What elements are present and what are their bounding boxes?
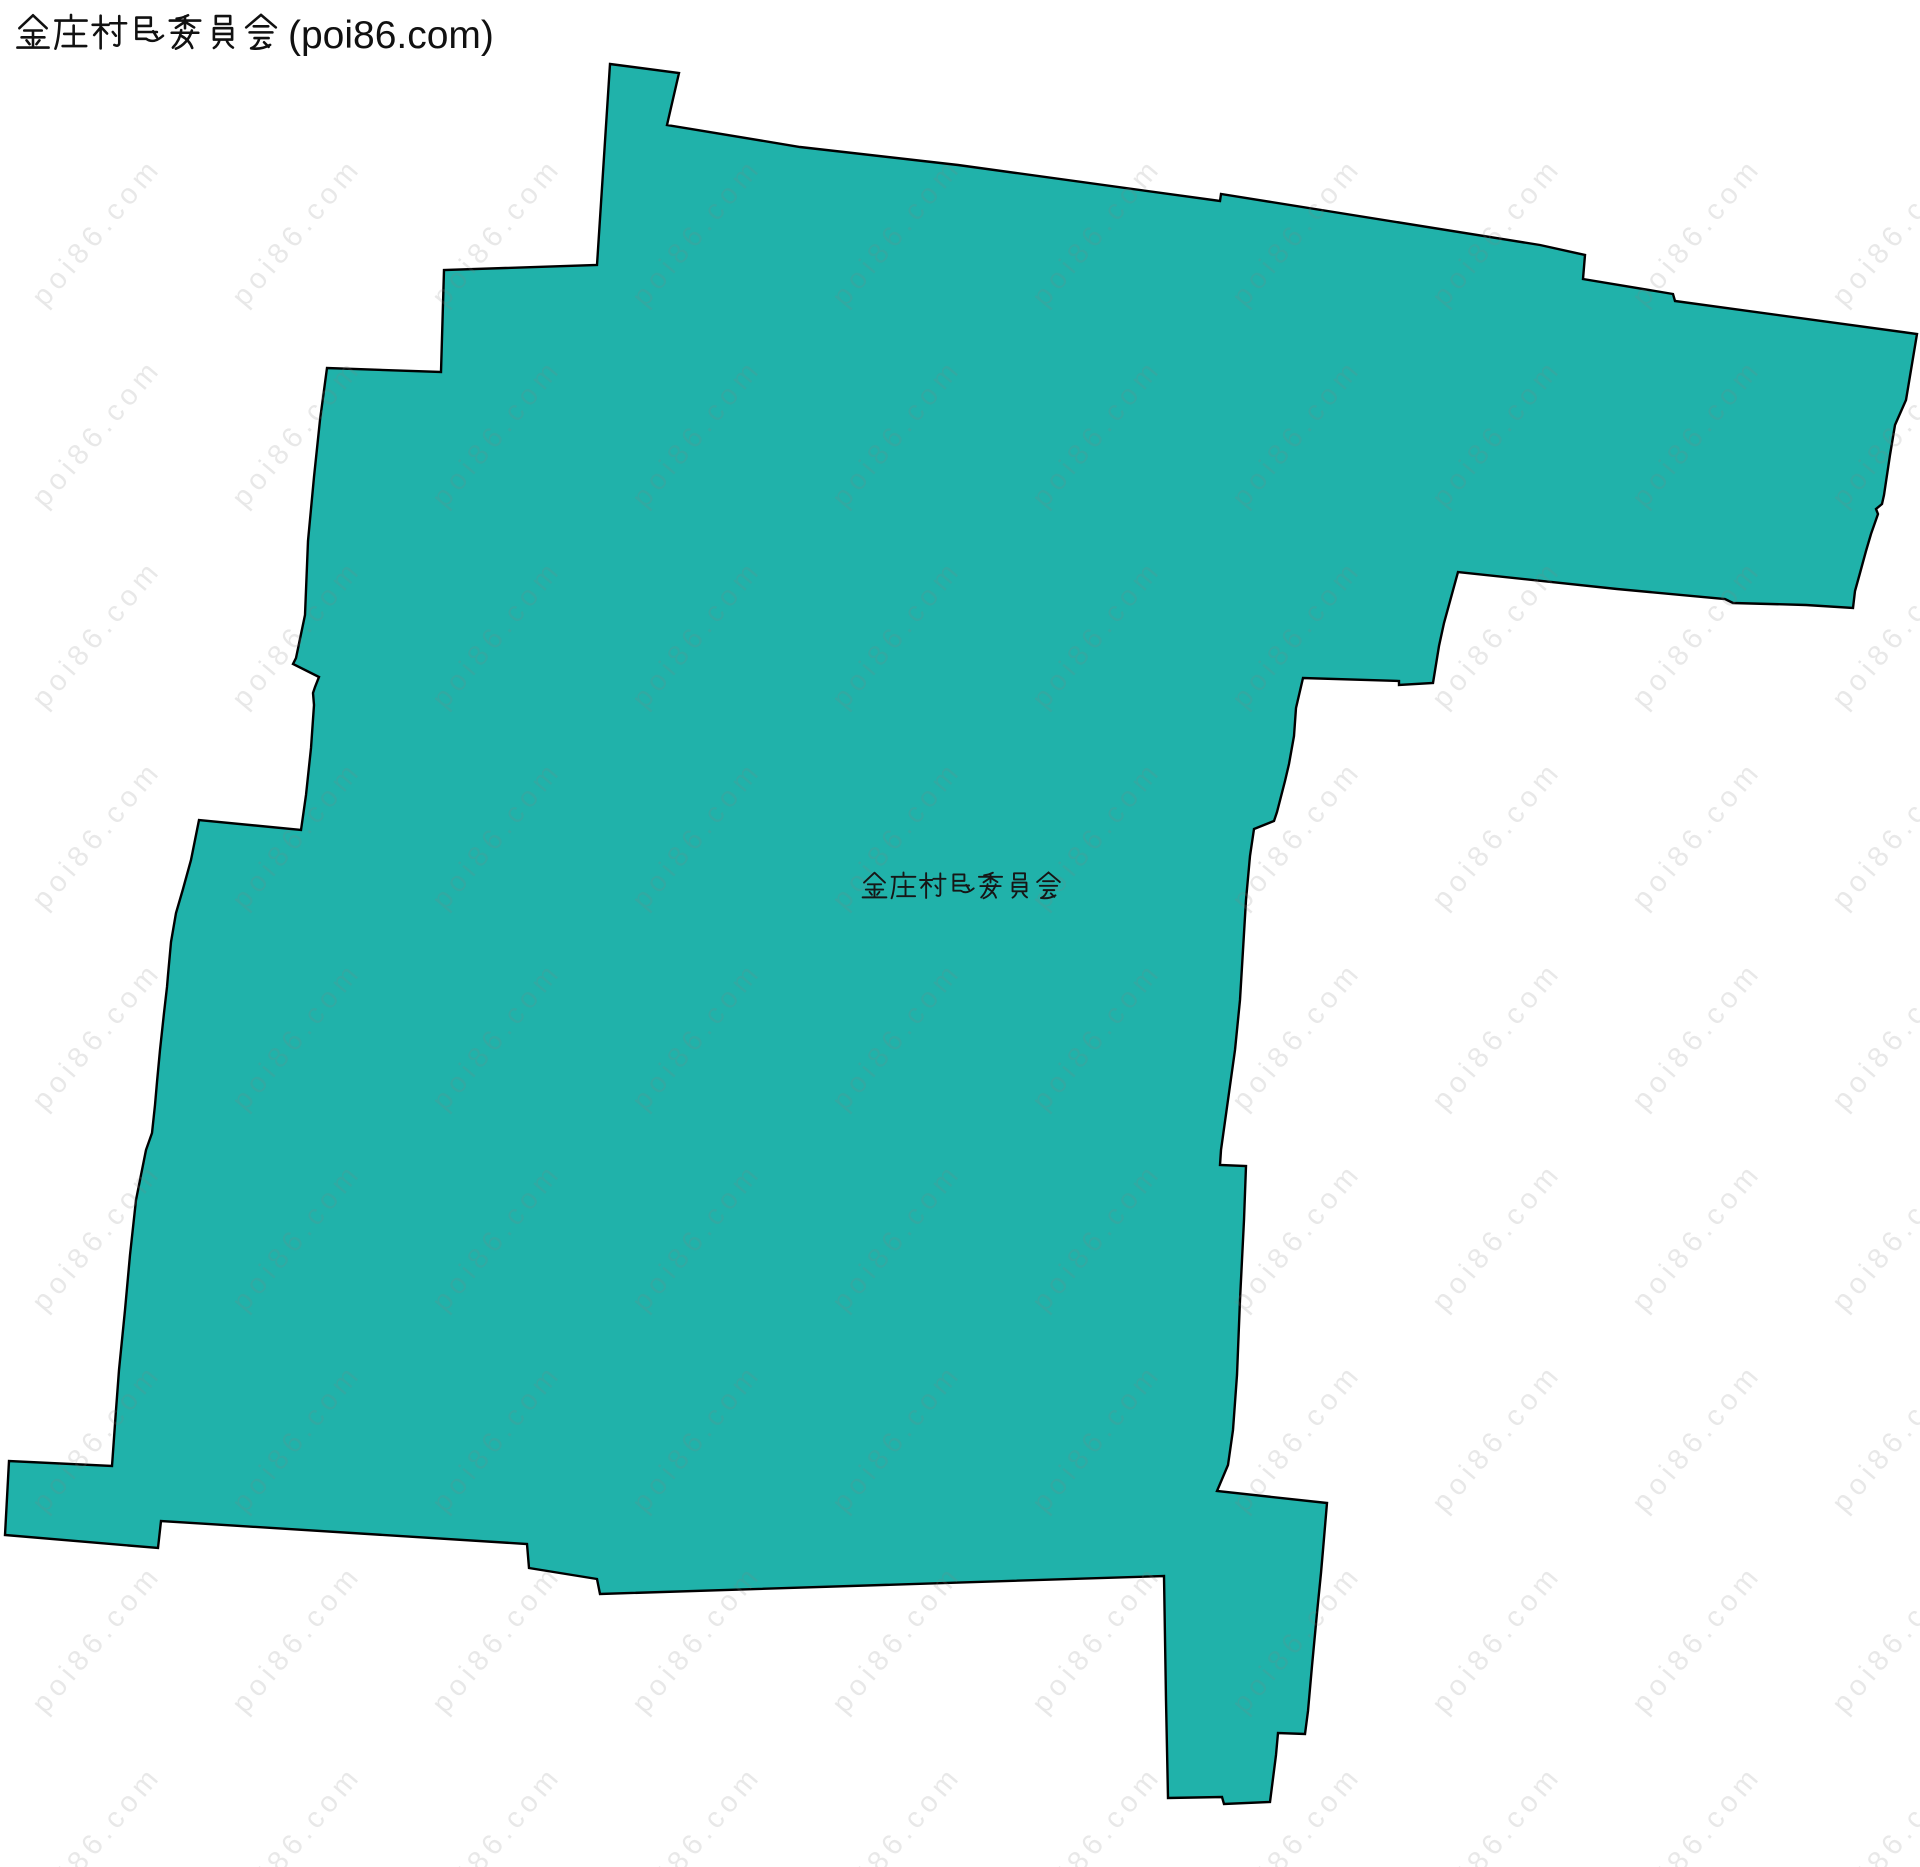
svg-text:(poi86.com): (poi86.com) [288,14,494,57]
